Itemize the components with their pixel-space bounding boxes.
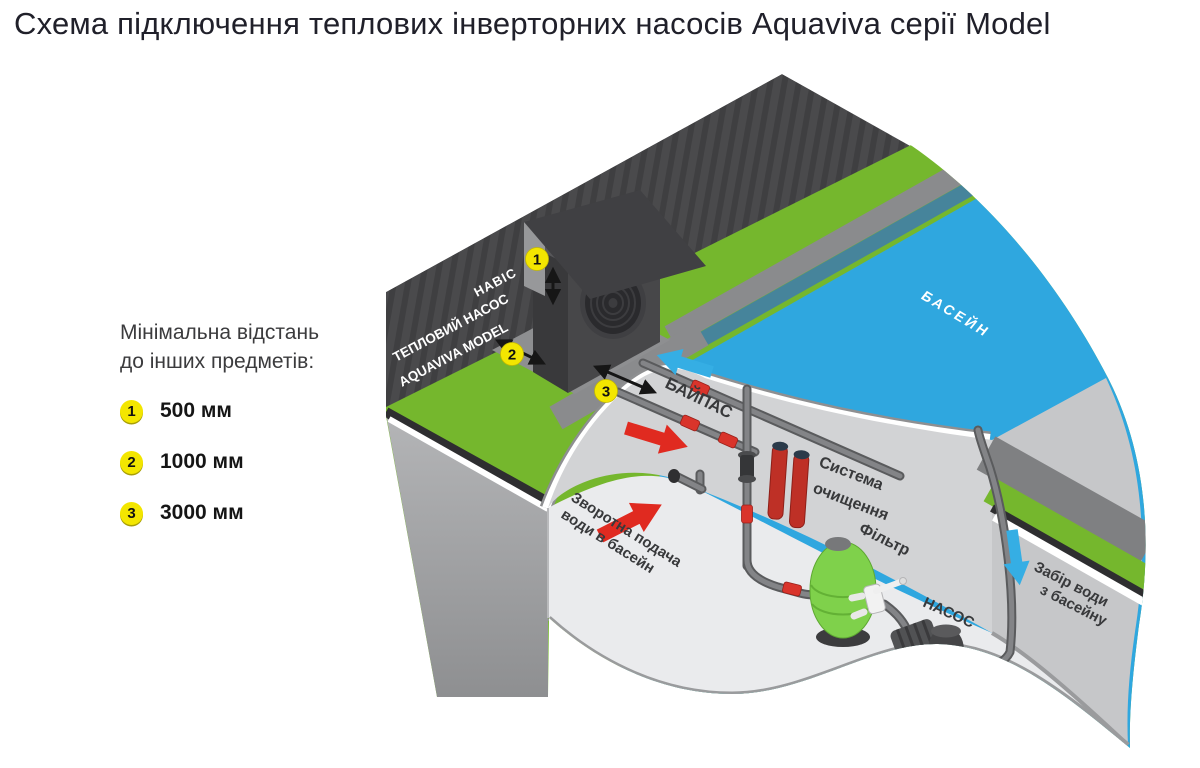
page: Схема підключення теплових інверторних н…	[0, 0, 1200, 768]
marker-2-badge: 2	[501, 343, 524, 366]
marker-1-badge: 1	[526, 248, 549, 271]
marker-1-number: 1	[533, 251, 541, 268]
marker-2-number: 2	[508, 346, 516, 363]
marker-3-badge: 3	[595, 380, 618, 403]
check-valve	[738, 451, 756, 483]
marker-3-number: 3	[602, 383, 610, 400]
return-outlet	[668, 469, 680, 483]
installation-scheme: НАВІС ТЕПЛОВИЙ НАСОС AQUAVIVA MODEL БАСЕ…	[0, 0, 1200, 768]
